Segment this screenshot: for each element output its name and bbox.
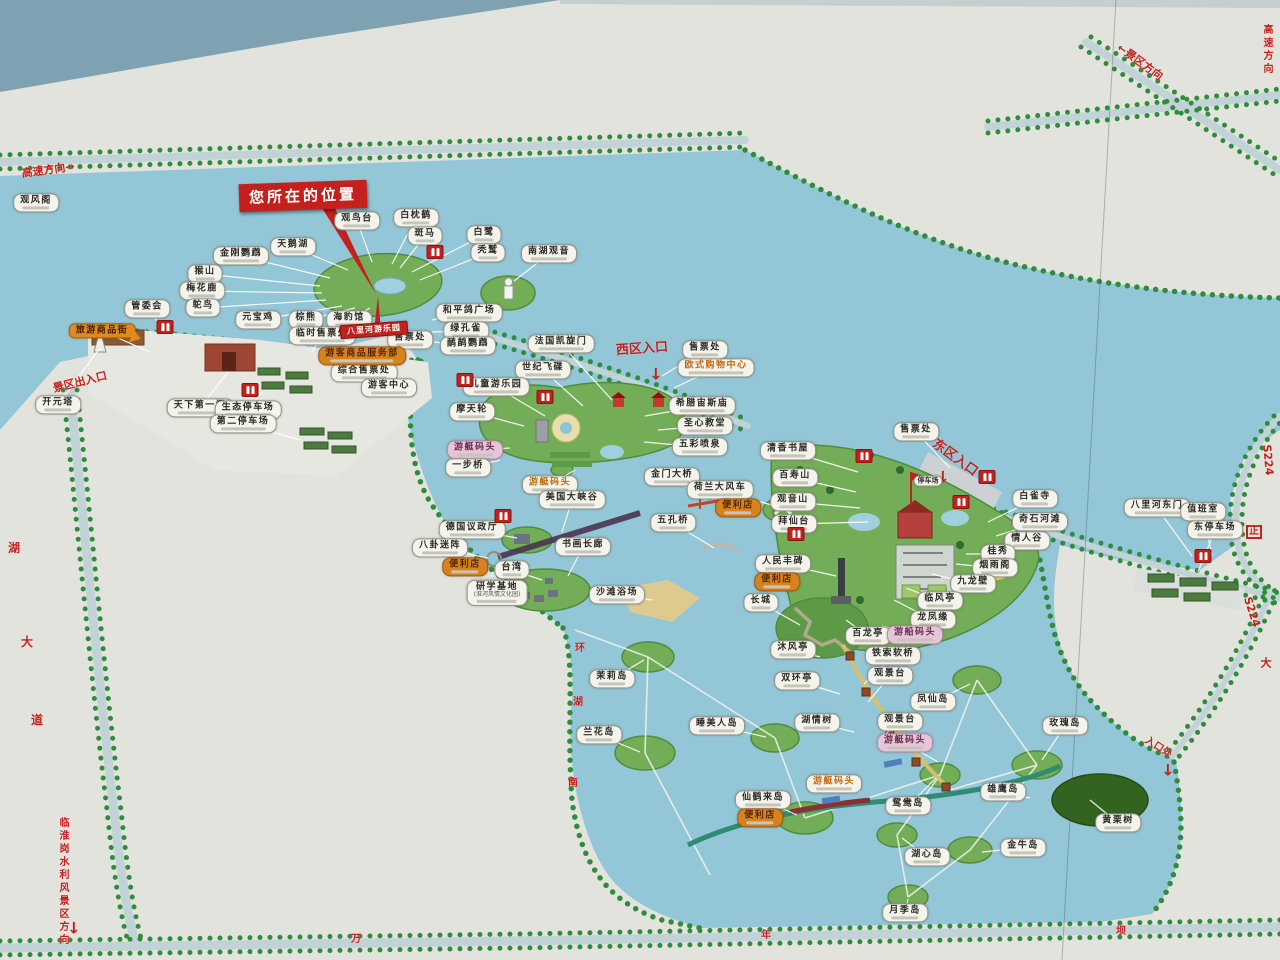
park-map-board: 高速方向→←景区方向高速方向S224正S224入口处西区入口东区入口景区出入口临…: [0, 0, 1280, 960]
plaza-land: [88, 326, 432, 476]
you-are-here-sign: 您所在的位置: [239, 180, 368, 212]
basemap-svg: [0, 0, 1280, 960]
castle: [898, 512, 932, 538]
monument-obelisk: [838, 558, 845, 598]
